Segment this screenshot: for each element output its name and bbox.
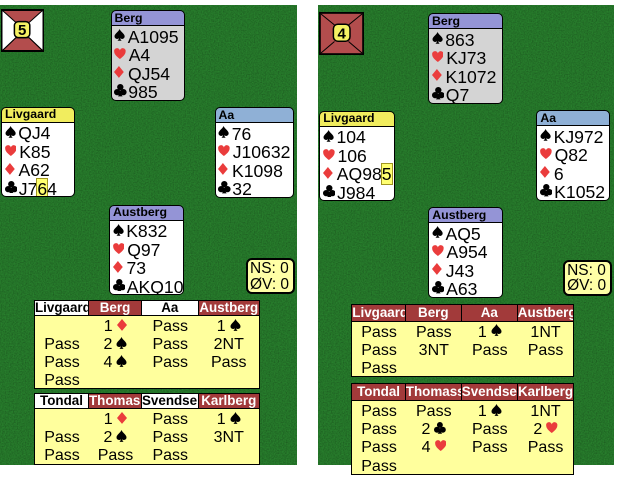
svg-text:5: 5 [18, 22, 26, 39]
svg-text:4: 4 [337, 25, 346, 42]
